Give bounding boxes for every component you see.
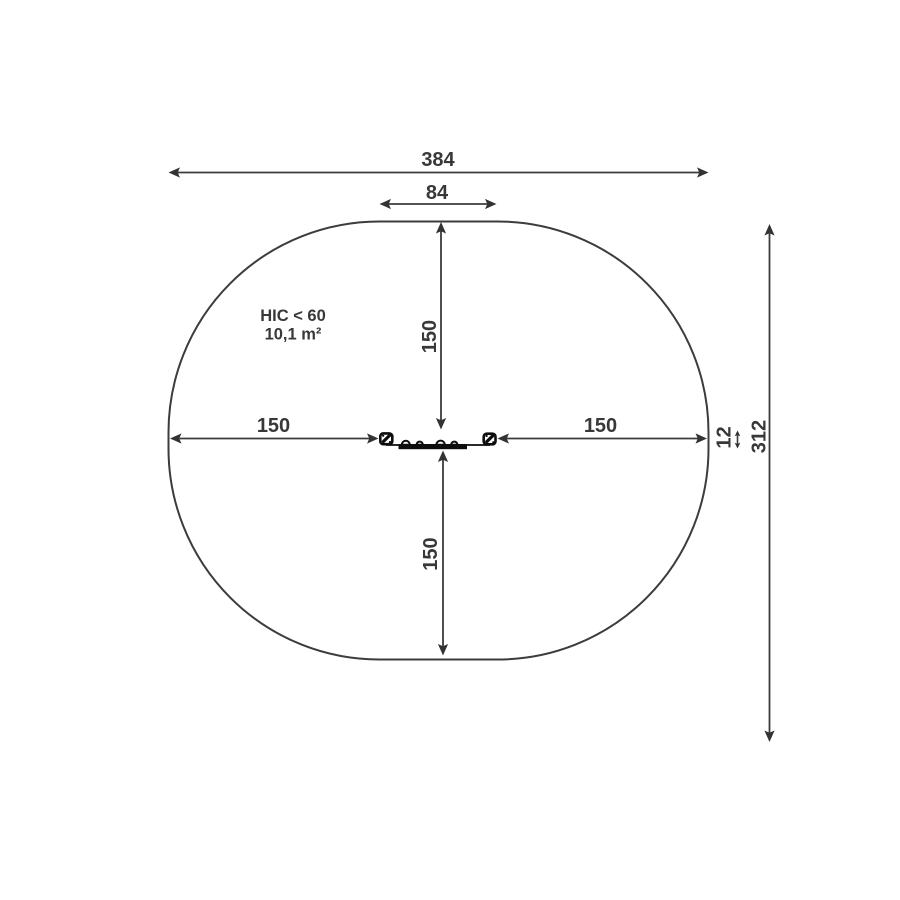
svg-text:84: 84 <box>426 182 449 204</box>
svg-text:HIC < 60: HIC < 60 <box>260 307 326 325</box>
svg-text:312: 312 <box>749 420 771 453</box>
svg-text:150: 150 <box>584 415 617 437</box>
svg-text:150: 150 <box>420 537 442 570</box>
svg-text:384: 384 <box>421 149 455 171</box>
svg-text:150: 150 <box>257 415 290 437</box>
svg-text:12: 12 <box>714 426 736 448</box>
svg-text:150: 150 <box>419 320 441 353</box>
svg-text:10,1 m²: 10,1 m² <box>265 326 322 344</box>
